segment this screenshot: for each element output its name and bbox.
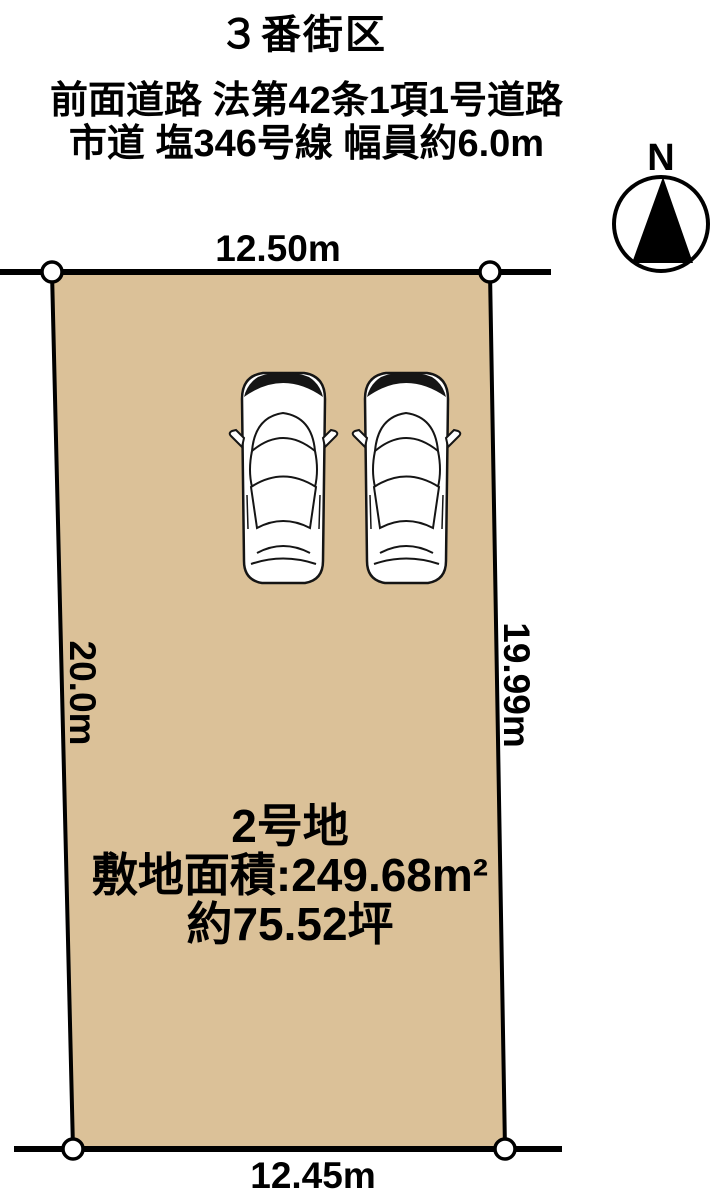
car-icon xyxy=(230,372,338,583)
dimension-bottom: 12.45m xyxy=(213,1155,413,1197)
compass-north-label: N xyxy=(647,137,674,179)
car-icon xyxy=(353,372,461,583)
lot-plan-page: N ３番街区 前面道路 法第42条1項1号道路 市道 塩346号線 幅員約6.0… xyxy=(0,0,713,1200)
front-road-info: 前面道路 法第42条1項1号道路 市道 塩346号線 幅員約6.0m xyxy=(0,80,613,166)
plot-map: N xyxy=(0,0,713,1200)
lot-name: 2号地 xyxy=(40,802,540,851)
road-info-line-2: 市道 塩346号線 幅員約6.0m xyxy=(0,123,613,166)
north-compass-icon: N xyxy=(614,137,708,271)
block-title: ３番街区 xyxy=(0,2,606,60)
lot-area-tsubo: 約75.52坪 xyxy=(40,900,540,949)
dimension-left: 20.0m xyxy=(63,613,103,773)
dimension-top: 12.50m xyxy=(178,228,378,270)
dimension-right: 19.99m xyxy=(497,605,537,765)
corner-marker-bottom-left xyxy=(63,1139,83,1159)
corner-marker-bottom-right xyxy=(495,1139,515,1159)
corner-marker-top-right xyxy=(480,262,500,282)
lot-info-block: 2号地 敷地面積:249.68m² 約75.52坪 xyxy=(40,802,540,949)
road-info-line-1: 前面道路 法第42条1項1号道路 xyxy=(0,80,613,123)
corner-marker-top-left xyxy=(42,262,62,282)
lot-site-area: 敷地面積:249.68m² xyxy=(40,851,540,900)
